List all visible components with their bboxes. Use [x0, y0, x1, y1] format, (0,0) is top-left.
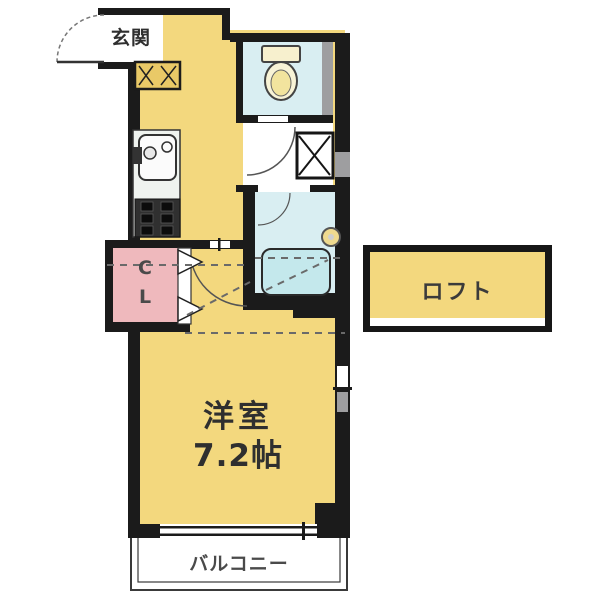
entrance-label: 玄関: [98, 23, 164, 50]
bath-faucet-icon: [322, 228, 340, 246]
faucet-icon: [133, 147, 142, 164]
toilet-door-opening: [258, 116, 288, 122]
main-room-size-label: 7.2帖: [132, 430, 344, 475]
closet-label-char: C: [113, 254, 177, 283]
shoe-cabinet-icon: [135, 62, 180, 89]
side-window-icon: [337, 366, 348, 390]
balcony-window-tick: [302, 522, 305, 540]
closet-label: C L: [113, 254, 177, 312]
sink-icon: [139, 135, 176, 180]
closet-label-char: L: [113, 283, 177, 312]
balcony-window-line: [160, 534, 317, 537]
loft-label: ロフト: [370, 274, 545, 306]
balcony-window-line: [160, 526, 317, 529]
floor-plan: 玄関 C L ロフト 洋室 7.2帖 バルコニー: [0, 0, 600, 600]
faucet-knob: [144, 147, 156, 159]
toilet-icon: [262, 46, 300, 100]
bath-door-opening: [258, 185, 310, 192]
top-step-outside: [222, 8, 345, 30]
side-window-tick: [333, 387, 352, 390]
washing-machine-icon: [297, 133, 333, 178]
balcony-label: バルコニー: [135, 549, 343, 576]
entrance-door-swing-icon: [57, 15, 104, 62]
pipe-space: [322, 40, 333, 116]
meter-box: [335, 152, 350, 177]
kitchen-unit: [133, 130, 180, 237]
hall-door-tick: [218, 238, 221, 251]
